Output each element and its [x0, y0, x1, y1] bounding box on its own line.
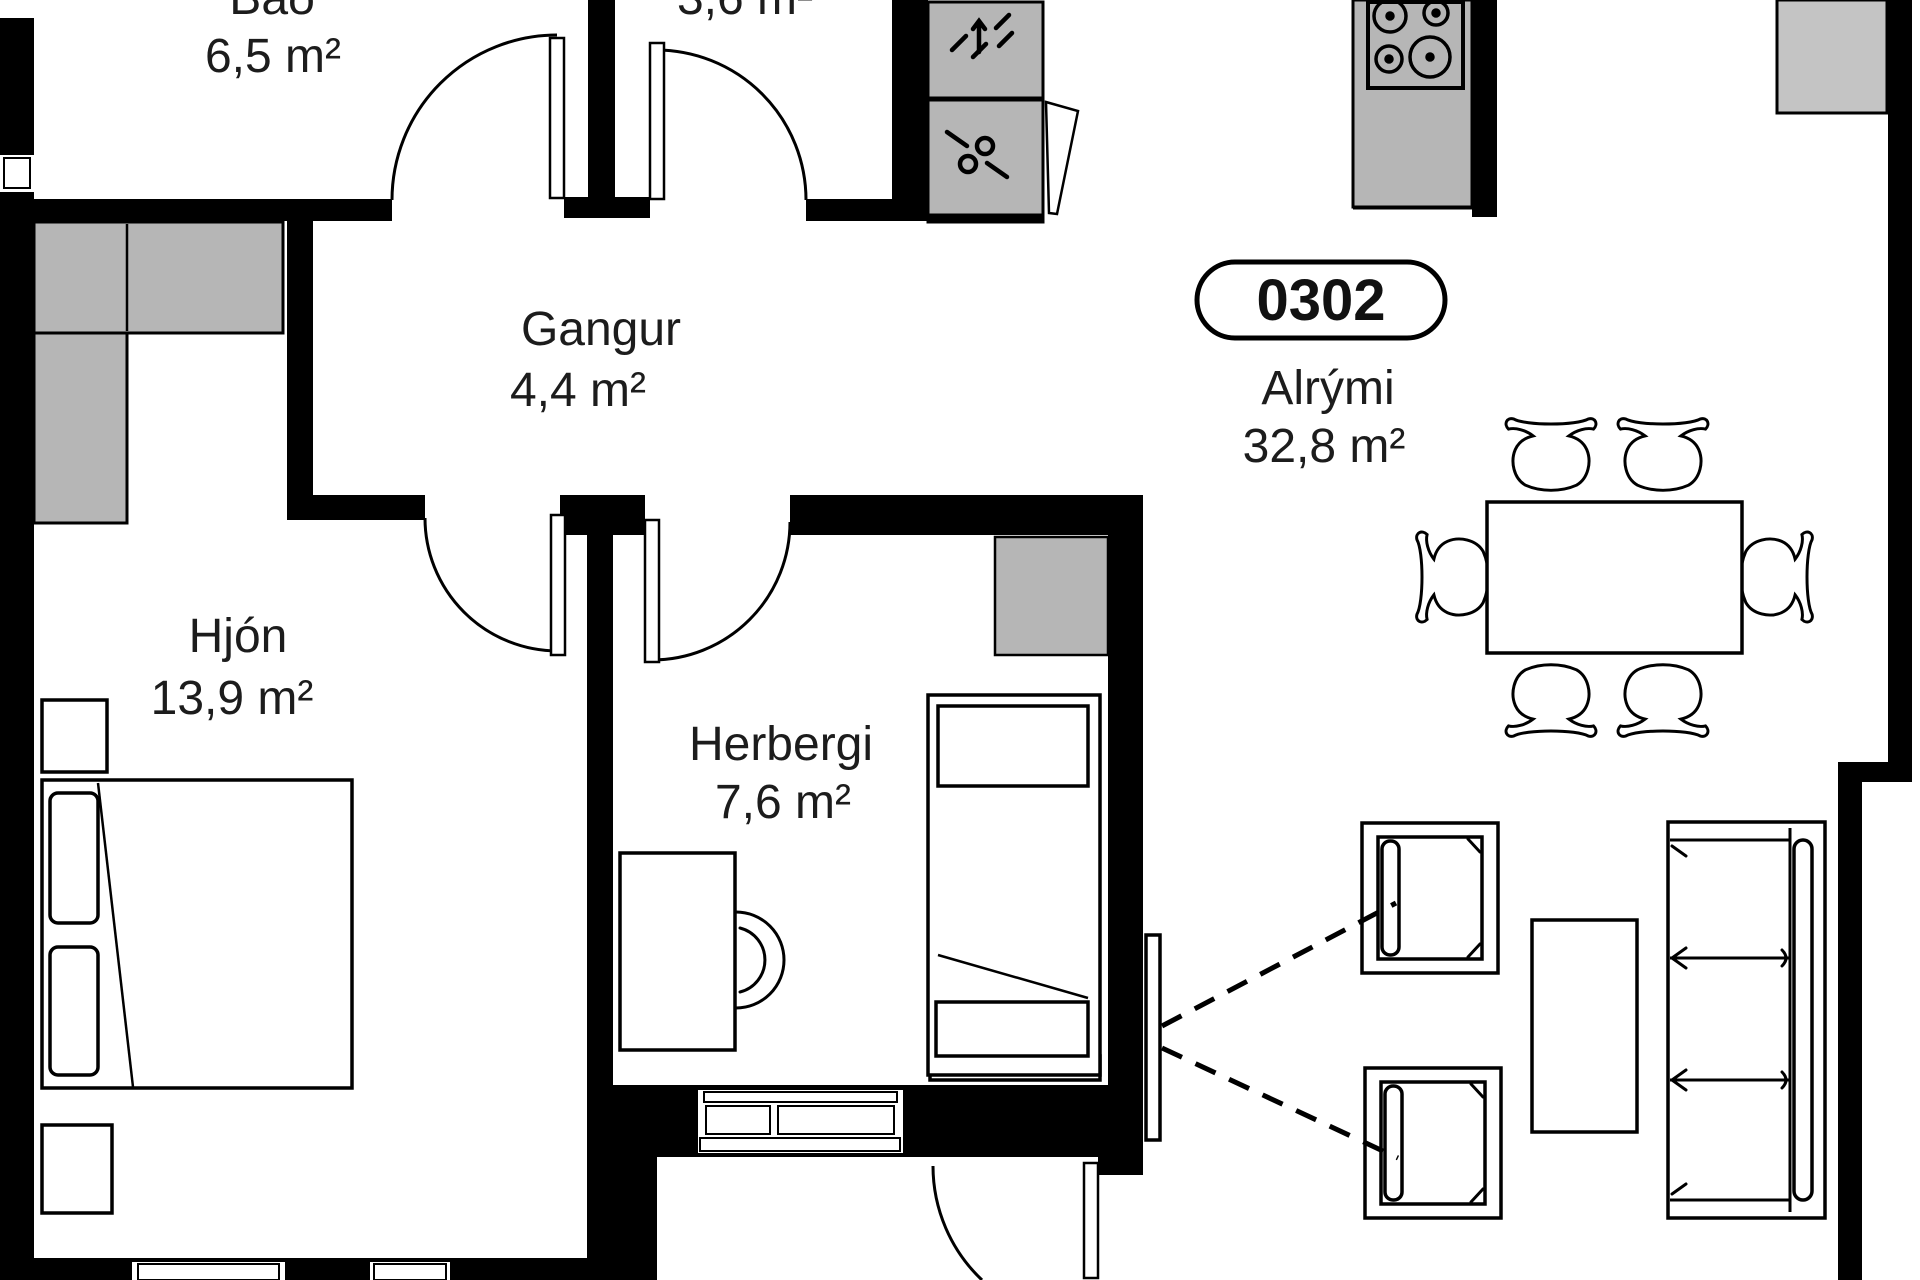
- dining-chair-icon: [1506, 665, 1596, 737]
- wall-right-lower: [1838, 782, 1862, 1280]
- wall-bottom-seg1: [34, 1258, 132, 1280]
- wall-balcony-nib: [1098, 1157, 1143, 1175]
- label-master-area: 13,9 m²: [151, 672, 314, 725]
- tv-icon: [1146, 935, 1160, 1140]
- label-hallway-area: 4,4 m²: [510, 364, 646, 417]
- dining-table-icon: [1487, 502, 1742, 653]
- door-leaf-storage: [650, 43, 664, 199]
- window-bathroom-icon: [4, 158, 30, 188]
- wall-entry-nook: [892, 0, 928, 221]
- label-bedroom-area: 7,6 m²: [715, 776, 851, 829]
- unit-badge: 0302: [1197, 262, 1445, 338]
- dining-chair-icon: [1506, 419, 1596, 491]
- armchair-icon-2: [1365, 1068, 1501, 1218]
- wall-hall-master: [287, 220, 313, 495]
- window-bedroom-pane1: [706, 1106, 770, 1134]
- label-master-name: Hjón: [189, 610, 288, 663]
- door-leaf-bedroom: [645, 520, 659, 662]
- window-master-head: [132, 1258, 285, 1262]
- unit-number: 0302: [1256, 268, 1385, 333]
- door-leaf-master: [551, 515, 565, 655]
- window-master2-icon: [374, 1264, 446, 1280]
- window-bedroom-sill: [700, 1138, 900, 1151]
- floor-plan-canvas: 0302 Bað 6,5 m² 3,6 m² Gangur 4,4 m² Hjó…: [0, 0, 1920, 1280]
- wall-kitchen: [1472, 0, 1497, 217]
- window-bedroom-pane2: [778, 1106, 894, 1134]
- door-swing-balcony: [933, 1166, 982, 1280]
- room-labels: Bað 6,5 m² 3,6 m² Gangur 4,4 m² Hjón 13,…: [151, 0, 1406, 829]
- desk-icon: [620, 853, 735, 1050]
- label-living-name: Alrými: [1261, 362, 1394, 415]
- armchair-icon-1: [1362, 823, 1498, 973]
- label-bathroom-area: 6,5 m²: [205, 30, 341, 83]
- wall-left-lower: [0, 192, 34, 1280]
- sightline-tv-armchair2: [1162, 1048, 1398, 1158]
- wall-left-upper: [0, 18, 34, 155]
- wall-threshold-top: [564, 197, 650, 218]
- wall-bath-bottom: [34, 199, 392, 221]
- door-swing-master: [425, 518, 558, 651]
- window-bedroom-head: [704, 1092, 897, 1102]
- dining-chair-icon: [1417, 532, 1489, 622]
- master-bedroom-furniture: [42, 700, 352, 1213]
- single-bed-foot-box: [936, 1002, 1088, 1056]
- dining-set: [1417, 419, 1813, 737]
- dining-chair-icon: [1618, 665, 1708, 737]
- wardrobe-left-icon: [34, 333, 127, 523]
- door-entry-icon: [1046, 102, 1078, 214]
- appliance-threshold: [928, 215, 1043, 222]
- label-storage-area: 3,6 m²: [677, 0, 813, 25]
- floor-plan: 0302 Bað 6,5 m² 3,6 m² Gangur 4,4 m² Hjó…: [0, 0, 1920, 1280]
- coffee-table-icon: [1532, 920, 1637, 1132]
- wall-bath-storage-partition: [588, 0, 615, 197]
- wall-master-nib: [287, 495, 425, 520]
- wall-master-bedroom-divider: [587, 495, 613, 1087]
- wall-right-step: [1838, 762, 1912, 782]
- wardrobe-top-icon: [34, 222, 283, 333]
- corner-cabinet-icon: [1777, 0, 1887, 113]
- label-living-area: 32,8 m²: [1243, 420, 1406, 473]
- nightstand-icon-2: [42, 1125, 112, 1213]
- pillow-icon-2: [50, 947, 98, 1075]
- nightstand-icon-1: [42, 700, 107, 772]
- window-master-icon: [138, 1264, 279, 1280]
- door-swing-bathroom: [392, 35, 557, 200]
- sofa-icon: [1668, 822, 1825, 1218]
- shaft-niche-icon: [995, 537, 1108, 655]
- label-bedroom-name: Herbergi: [689, 718, 873, 771]
- dining-chair-icon: [1618, 419, 1708, 491]
- wall-bedroom-top: [790, 495, 1143, 535]
- door-leaf-bathroom: [550, 38, 564, 198]
- door-swing-bedroom: [652, 522, 790, 660]
- window-master2-head: [370, 1258, 450, 1262]
- door-leaf-balcony: [1084, 1163, 1098, 1278]
- living-set: [1162, 822, 1825, 1218]
- wall-bedroom-right: [1108, 495, 1143, 1160]
- label-hallway-name: Gangur: [521, 303, 681, 356]
- pillow-icon-1: [50, 793, 98, 923]
- dryer-icon: [928, 2, 1043, 98]
- label-bathroom-name: Bað: [229, 0, 314, 25]
- wall-right-upper: [1888, 0, 1912, 782]
- washer-icon: [928, 100, 1043, 215]
- single-bed-pillow: [938, 706, 1088, 786]
- dining-chair-icon: [1741, 532, 1813, 622]
- door-swing-storage: [656, 50, 806, 200]
- wall-bottom-seg2: [285, 1258, 370, 1280]
- desk-chair-icon: [736, 912, 784, 1008]
